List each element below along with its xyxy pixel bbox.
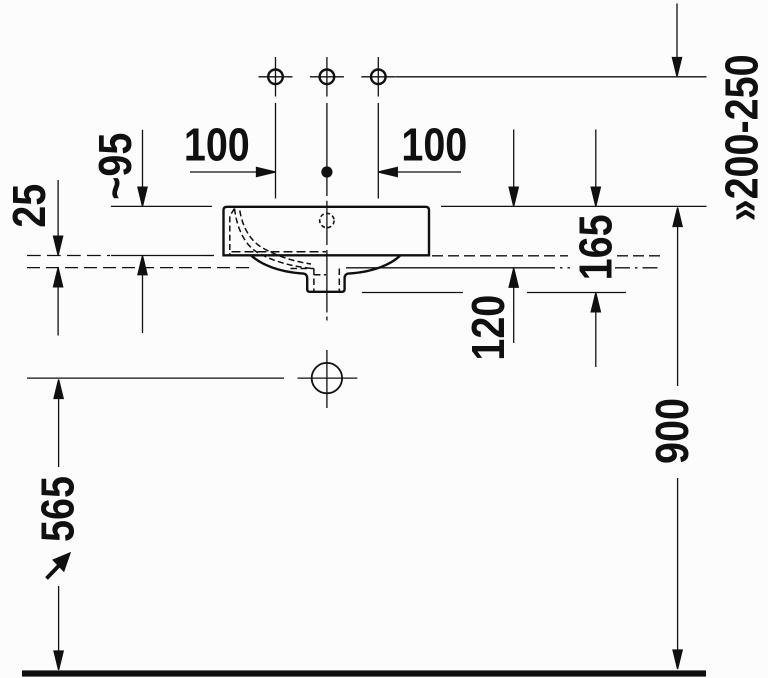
svg-text:120: 120	[463, 295, 515, 361]
svg-text:100: 100	[184, 119, 250, 171]
svg-text:~95: ~95	[90, 133, 142, 200]
svg-text:165: 165	[570, 214, 622, 280]
svg-text:»200-250: »200-250	[716, 54, 768, 221]
svg-text:25: 25	[4, 184, 56, 228]
svg-text:565: 565	[33, 476, 85, 542]
svg-text:100: 100	[401, 119, 467, 171]
svg-text:900: 900	[647, 398, 699, 464]
